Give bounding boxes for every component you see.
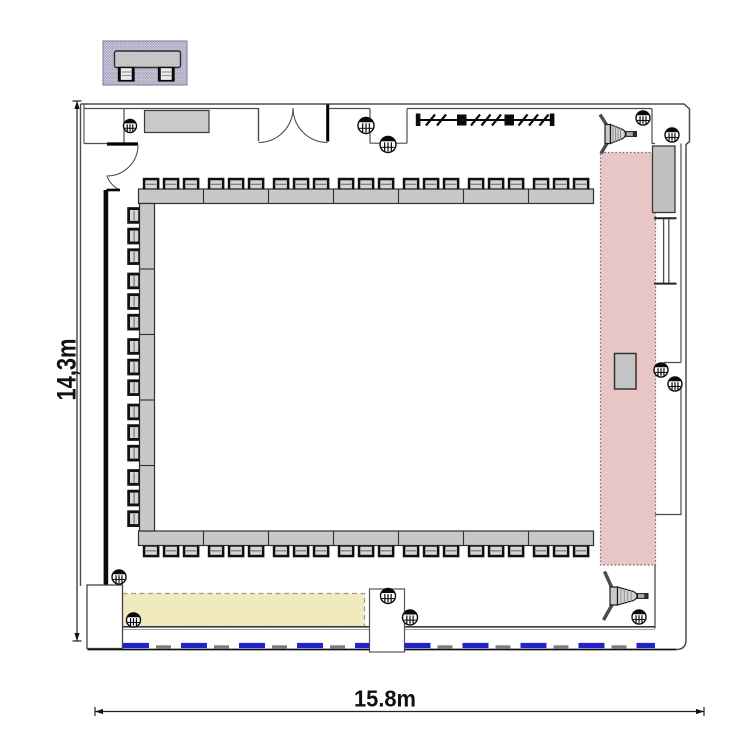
svg-text:15.8m: 15.8m — [354, 686, 416, 712]
svg-text:14,3m: 14,3m — [52, 339, 82, 401]
